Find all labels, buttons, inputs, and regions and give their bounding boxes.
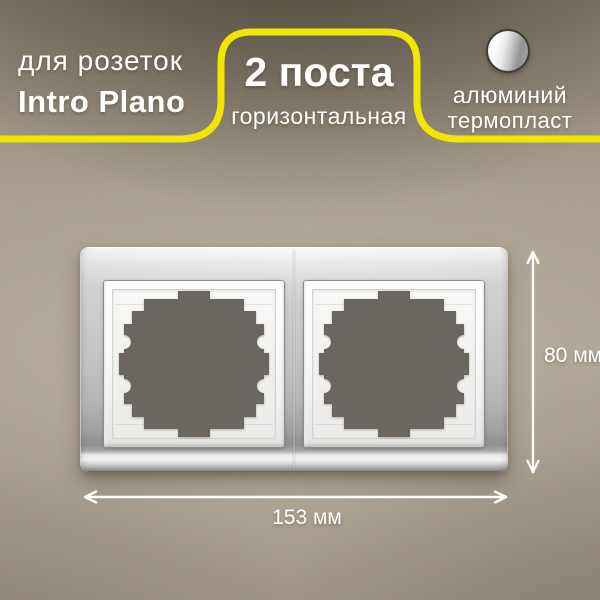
frame-center-seam: [292, 250, 296, 469]
product-name-label: Intro Plano: [18, 86, 185, 117]
socket-frame: [80, 247, 508, 472]
socket-opening-left: [103, 280, 285, 448]
width-dimension-label: 153 мм: [237, 507, 377, 528]
socket-opening-right: [303, 280, 485, 448]
orientation-label: горизонтальная: [221, 105, 417, 128]
socket-aperture: [119, 291, 269, 437]
socket-aperture: [319, 291, 469, 437]
height-dimension-label: 80 мм: [544, 345, 600, 366]
product-line-label: для розеток: [18, 47, 183, 75]
material-label: алюминий: [423, 84, 597, 107]
product-card: для розеток Intro Plano 2 поста горизонт…: [0, 0, 600, 600]
aluminum-material-icon: [486, 29, 530, 73]
plastic-label: термопласт: [423, 110, 597, 132]
posts-count-label: 2 поста: [221, 52, 417, 93]
